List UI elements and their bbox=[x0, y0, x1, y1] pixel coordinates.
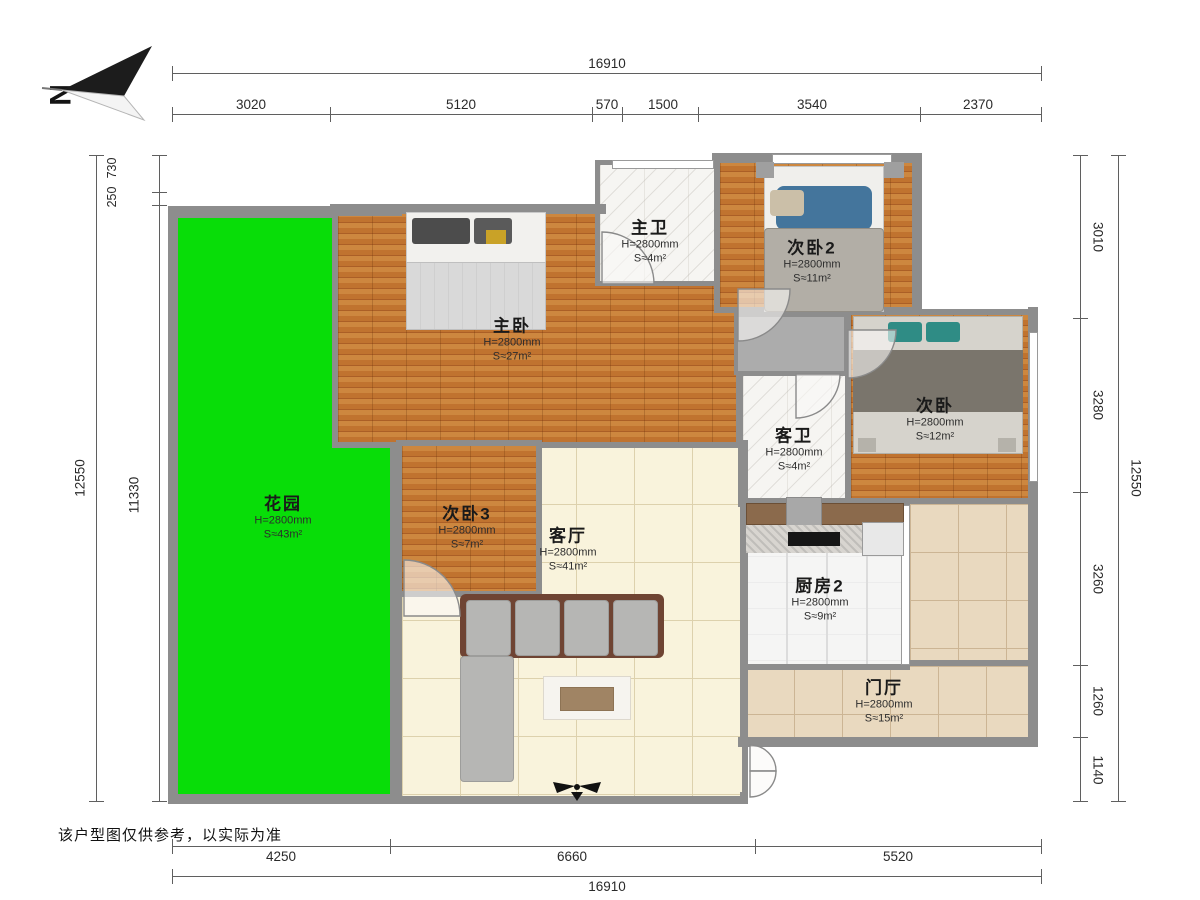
tick bbox=[172, 66, 173, 81]
room-label-foyer: 门厅 H=2800mm S≈15m² bbox=[855, 678, 912, 727]
bedroom-bed-leg bbox=[858, 438, 876, 452]
dim-line-left-total bbox=[96, 155, 97, 802]
wall-living-right bbox=[740, 440, 748, 745]
tick bbox=[152, 205, 167, 206]
dim-line-right-total bbox=[1118, 155, 1119, 802]
room-label-bedroom3: 次卧3 H=2800mm S≈7m² bbox=[438, 504, 495, 553]
dim-right-seg-2: 3260 bbox=[1091, 562, 1106, 596]
master-bed-cushion bbox=[486, 230, 506, 244]
sofa-cushion bbox=[515, 600, 560, 656]
dim-right-seg-1: 3280 bbox=[1091, 388, 1106, 422]
tick bbox=[755, 839, 756, 854]
bedroom-bed-leg bbox=[998, 438, 1016, 452]
wall-foyer-right bbox=[1028, 498, 1038, 747]
room-label-living: 客厅 H=2800mm S≈41m² bbox=[539, 526, 596, 575]
tick bbox=[1111, 801, 1126, 802]
north-label: N bbox=[42, 84, 76, 106]
floorplan-canvas: N bbox=[0, 0, 1200, 900]
dim-top-total: 16910 bbox=[586, 56, 628, 71]
tick bbox=[89, 155, 104, 156]
tick bbox=[920, 107, 921, 122]
tick bbox=[1073, 665, 1088, 666]
tick bbox=[152, 801, 167, 802]
dim-line-top-segments bbox=[172, 114, 1042, 115]
stove-cooktop bbox=[788, 532, 840, 546]
tick bbox=[89, 801, 104, 802]
dim-line-right-segments bbox=[1080, 155, 1081, 802]
dim-line-bottom-total bbox=[172, 876, 1042, 877]
dim-bottom-seg-0: 4250 bbox=[264, 849, 298, 864]
dim-top-seg-2: 570 bbox=[594, 97, 621, 112]
sofa-cushion bbox=[466, 600, 511, 656]
dim-right-seg-3: 1260 bbox=[1091, 684, 1106, 718]
room-label-master-bedroom: 主卧 H=2800mm S≈27m² bbox=[483, 316, 540, 365]
tick bbox=[698, 107, 699, 122]
room-label-bedroom2: 次卧2 H=2800mm S≈11m² bbox=[783, 238, 840, 287]
hallway-area bbox=[734, 313, 848, 375]
tick bbox=[330, 107, 331, 122]
tick bbox=[390, 839, 391, 854]
tick bbox=[1073, 155, 1088, 156]
bedroom-pillow bbox=[888, 322, 922, 342]
tick bbox=[172, 869, 173, 884]
room-name: 次卧2 bbox=[783, 238, 840, 259]
dim-left-total: 12550 bbox=[73, 457, 88, 499]
tick bbox=[172, 107, 173, 122]
tick bbox=[1111, 155, 1126, 156]
bedroom2-nightstand bbox=[756, 162, 774, 178]
wall-entry-stub bbox=[740, 792, 748, 804]
room-name: 花园 bbox=[254, 494, 311, 515]
wall-living-bottom bbox=[396, 796, 748, 804]
room-name: 门厅 bbox=[855, 678, 912, 699]
tick bbox=[622, 107, 623, 122]
master-bed-pillow bbox=[412, 218, 470, 244]
window-master-bath bbox=[612, 160, 714, 169]
tick bbox=[1073, 492, 1088, 493]
wall-garden-bottom bbox=[168, 794, 402, 804]
dim-top-seg-4: 3540 bbox=[795, 97, 829, 112]
entry-door-leaf-top bbox=[750, 745, 776, 771]
range-hood bbox=[786, 497, 822, 527]
dim-line-bottom-segments bbox=[172, 846, 1042, 847]
sofa-cushion bbox=[564, 600, 609, 656]
room-name: 主卧 bbox=[483, 316, 540, 337]
wall-outer-left bbox=[168, 206, 178, 804]
tick bbox=[152, 192, 167, 193]
room-name: 客卫 bbox=[765, 426, 822, 447]
dim-left-seg-2: 11330 bbox=[127, 475, 142, 516]
window-bedroom2 bbox=[772, 154, 892, 164]
bedroom2-pillow bbox=[770, 190, 804, 216]
dim-left-seg-0: 730 bbox=[105, 156, 119, 181]
dim-left-seg-1: 250 bbox=[105, 185, 119, 210]
bedroom2-nightstand bbox=[884, 162, 904, 178]
dim-top-seg-1: 5120 bbox=[444, 97, 478, 112]
dim-line-left-segments bbox=[159, 155, 160, 802]
room-label-master-bath: 主卫 H=2800mm S≈4m² bbox=[621, 218, 678, 267]
tick bbox=[1073, 801, 1088, 802]
north-arrow-icon bbox=[40, 38, 170, 128]
dim-bottom-seg-2: 5520 bbox=[881, 849, 915, 864]
dim-bottom-seg-1: 6660 bbox=[555, 849, 589, 864]
coffee-table bbox=[560, 687, 614, 711]
room-name: 客厅 bbox=[539, 526, 596, 547]
dim-line-top-total bbox=[172, 73, 1042, 74]
room-name: 次卧 bbox=[906, 396, 963, 417]
tick bbox=[1041, 869, 1042, 884]
entry-door-leaf-bottom bbox=[750, 771, 776, 797]
bedroom-pillow bbox=[926, 322, 960, 342]
tick bbox=[1041, 66, 1042, 81]
room-name: 次卧3 bbox=[438, 504, 495, 525]
dim-right-total: 12550 bbox=[1129, 457, 1144, 499]
sofa-cushion bbox=[613, 600, 658, 656]
room-name: 厨房2 bbox=[791, 576, 848, 597]
tick bbox=[1041, 839, 1042, 854]
room-label-kitchen2: 厨房2 H=2800mm S≈9m² bbox=[791, 576, 848, 625]
room-label-guest-bath: 客卫 H=2800mm S≈4m² bbox=[765, 426, 822, 475]
window-bedroom bbox=[1029, 332, 1038, 482]
room-label-bedroom: 次卧 H=2800mm S≈12m² bbox=[906, 396, 963, 445]
tick bbox=[1073, 318, 1088, 319]
dim-right-seg-4: 1140 bbox=[1091, 753, 1106, 786]
wall-foyer-bottom bbox=[738, 737, 1038, 747]
sofa-chaise bbox=[460, 656, 514, 782]
tick bbox=[152, 155, 167, 156]
dim-top-seg-3: 1500 bbox=[646, 97, 680, 112]
kitchen-sink bbox=[862, 522, 904, 556]
wall-bedroom2-right bbox=[912, 153, 922, 315]
dim-top-seg-5: 2370 bbox=[961, 97, 995, 112]
disclaimer-text: 该户型图仅供参考，以实际为准 bbox=[58, 824, 282, 845]
dim-right-seg-0: 3010 bbox=[1091, 220, 1106, 254]
dim-bottom-total: 16910 bbox=[586, 879, 628, 894]
room-label-garden: 花园 H=2800mm S≈43m² bbox=[254, 494, 311, 543]
dim-top-seg-0: 3020 bbox=[234, 97, 268, 112]
tick bbox=[1041, 107, 1042, 122]
tick bbox=[1073, 737, 1088, 738]
room-name: 主卫 bbox=[621, 218, 678, 239]
